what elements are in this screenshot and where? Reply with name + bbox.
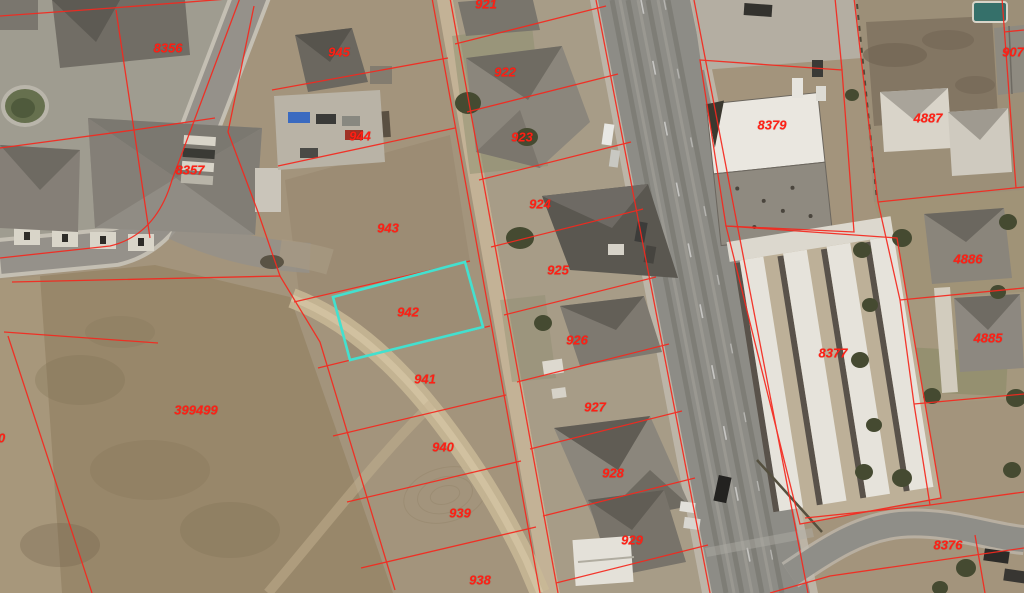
aerial-imagery: [0, 0, 1024, 593]
map-canvas[interactable]: 8356835739949994594494394294194093993892…: [0, 0, 1024, 593]
